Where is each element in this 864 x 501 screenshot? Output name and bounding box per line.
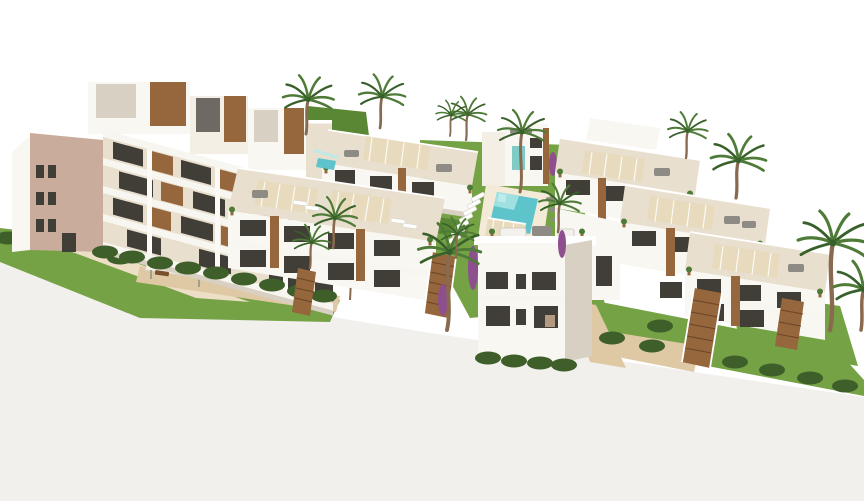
architectural-render [0,0,864,501]
render-canvas [0,0,864,501]
gable-wall [12,133,103,252]
